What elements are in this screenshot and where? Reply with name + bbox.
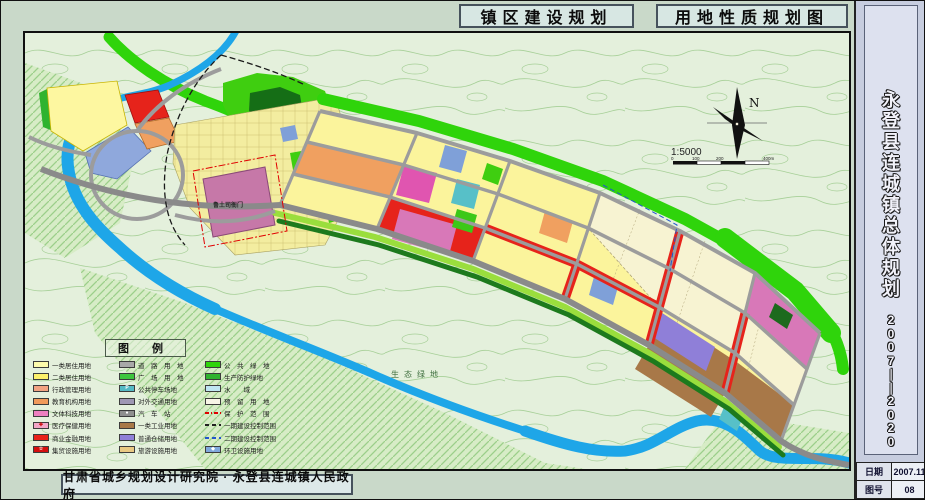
legend-label: 旅游设施用地: [138, 445, 177, 455]
legend-item: 一期建设控制范围: [205, 421, 283, 430]
legend-swatch: ◆: [205, 446, 221, 453]
legend-label: 公共停车场地: [138, 384, 177, 394]
legend-label: 水 域: [224, 384, 250, 394]
vertical-char: 永: [882, 90, 900, 111]
legend-swatch: [33, 398, 49, 405]
info-value: 08: [892, 481, 925, 499]
vertical-char: 规: [882, 258, 900, 279]
legend-swatch: ●: [119, 410, 135, 417]
vertical-char: 0: [888, 436, 895, 450]
label-eco-green: 生态绿地: [391, 369, 443, 379]
legend-swatch: ☆: [33, 446, 49, 453]
legend-swatch: [119, 422, 135, 429]
legend-item: 广 场 用 地: [119, 372, 197, 381]
legend-swatch: [205, 424, 221, 426]
legend-title: 图 例: [105, 339, 186, 357]
vertical-char: 登: [882, 111, 900, 132]
vertical-char: 连: [882, 153, 900, 174]
scale-tick: 200: [716, 156, 724, 161]
credit-text: 甘肃省城乡规划设计研究院 · 永登县连城镇人民政府: [63, 468, 351, 500]
legend-label: 一期建设控制范围: [224, 420, 276, 430]
legend-swatch: [33, 373, 49, 380]
legend-column-2: 公 共 绿 地生产防护绿地水 域预 留 用 地保 护 范 围一期建设控制范围二期…: [205, 360, 283, 454]
legend-column-1: 道 路 用 地广 场 用 地P公共停车场地对外交通用地●汽 车 站一类工业用地普…: [119, 360, 197, 454]
info-value: 2007.11: [892, 463, 925, 481]
legend-item: 文体科技用地: [33, 409, 111, 418]
legend-item: 旅游设施用地: [119, 445, 197, 454]
vertical-char: 镇: [882, 195, 900, 216]
legend-label: 行政管理用地: [52, 384, 91, 394]
legend-item: 一类工业用地: [119, 421, 197, 430]
legend-swatch: [33, 434, 49, 441]
legend-item: 二类居住用地: [33, 372, 111, 381]
legend-swatch: [205, 361, 221, 368]
legend-swatch: P: [119, 385, 135, 392]
legend: 图 例 一类居住用地二类居住用地行政管理用地教育机构用地文体科技用地✚医疗保健用…: [33, 339, 283, 454]
legend-label: 集贸设施用地: [52, 445, 91, 455]
legend-swatch: [205, 385, 221, 392]
compass-n-label: N: [749, 96, 760, 110]
legend-swatch: [119, 434, 135, 441]
legend-item: 行政管理用地: [33, 384, 111, 393]
vertical-char: 0: [888, 341, 895, 355]
vertical-char: 2: [888, 395, 895, 409]
legend-label: 对外交通用地: [138, 396, 177, 406]
legend-label: 一类居住用地: [52, 360, 91, 370]
legend-swatch: [119, 373, 135, 380]
vertical-char: 7: [888, 355, 895, 369]
legend-swatch: [33, 361, 49, 368]
legend-item: 一类居住用地: [33, 360, 111, 369]
legend-label: 医疗保健用地: [52, 420, 91, 430]
legend-label: 普通仓储用地: [138, 433, 177, 443]
legend-item: 生产防护绿地: [205, 372, 283, 381]
legend-swatch: ✚: [33, 422, 49, 429]
scale-tick: 400m: [763, 156, 775, 161]
legend-label: 汽 车 站: [138, 408, 171, 418]
info-label: 图号: [857, 481, 892, 499]
legend-item: ✚医疗保健用地: [33, 421, 111, 430]
legend-item: 普通仓储用地: [119, 433, 197, 442]
legend-item: 二期建设控制范围: [205, 433, 283, 442]
map-panel: N 1:5000 0 100 200 400m 鲁土司衙门 生态绿地 图 例 一…: [23, 31, 851, 471]
vertical-char: —: [884, 382, 898, 394]
legend-swatch: [205, 412, 221, 414]
legend-item: 道 路 用 地: [119, 360, 197, 369]
drawing-info-table: 日期2007.11图号08: [856, 462, 925, 499]
legend-label: 保 护 范 围: [224, 408, 270, 418]
info-row: 图号08: [857, 481, 925, 499]
legend-label: 商业金融用地: [52, 433, 91, 443]
legend-item: 公 共 绿 地: [205, 360, 283, 369]
legend-item: ◆环卫设施用地: [205, 445, 283, 454]
legend-item: ●汽 车 站: [119, 409, 197, 418]
sidebar: 永登县连城镇总体规划 2007——2020 日期2007.11图号08: [854, 1, 925, 500]
legend-label: 生产防护绿地: [224, 372, 263, 382]
legend-label: 广 场 用 地: [138, 372, 184, 382]
legend-item: 水 域: [205, 384, 283, 393]
legend-label: 道 路 用 地: [138, 360, 184, 370]
credit-box: 甘肃省城乡规划设计研究院 · 永登县连城镇人民政府: [61, 474, 353, 495]
title-landuse-map: 用地性质规划图: [656, 4, 848, 28]
info-label: 日期: [857, 463, 892, 481]
info-row: 日期2007.11: [857, 463, 925, 481]
legend-swatch: [205, 373, 221, 380]
legend-item: 对外交通用地: [119, 397, 197, 406]
legend-swatch: [33, 385, 49, 392]
vertical-char: —: [884, 369, 898, 381]
title-construction-plan: 镇区建设规划: [459, 4, 634, 28]
legend-item: 教育机构用地: [33, 397, 111, 406]
vertical-char: 总: [882, 216, 900, 237]
legend-swatch: [119, 446, 135, 453]
legend-item: ☆集贸设施用地: [33, 445, 111, 454]
vertical-char: 体: [882, 237, 900, 258]
legend-swatch: [119, 361, 135, 368]
vertical-char: 城: [882, 174, 900, 195]
title-right-text: 用地性质规划图: [675, 4, 829, 28]
legend-label: 教育机构用地: [52, 396, 91, 406]
vertical-char: 2: [888, 422, 895, 436]
legend-swatch: [33, 410, 49, 417]
legend-label: 一类工业用地: [138, 420, 177, 430]
legend-label: 二类居住用地: [52, 372, 91, 382]
legend-column-0: 一类居住用地二类居住用地行政管理用地教育机构用地文体科技用地✚医疗保健用地商业金…: [33, 360, 111, 454]
vertical-char: 2: [888, 314, 895, 328]
legend-label: 二期建设控制范围: [224, 433, 276, 443]
plan-sheet: 镇区建设规划 用地性质规划图: [0, 0, 925, 500]
legend-item: 保 护 范 围: [205, 409, 283, 418]
legend-swatch: [205, 437, 221, 439]
label-yamen: 鲁土司衙门: [213, 201, 243, 209]
legend-label: 预 留 用 地: [224, 396, 270, 406]
legend-swatch: [119, 398, 135, 405]
legend-item: 商业金融用地: [33, 433, 111, 442]
vertical-char: 0: [888, 409, 895, 423]
legend-item: P公共停车场地: [119, 384, 197, 393]
vertical-char: 划: [882, 279, 900, 300]
sidebar-vertical-years: 2007——2020: [865, 314, 917, 449]
title-left-text: 镇区建设规划: [480, 4, 612, 28]
scale-tick: 100: [692, 156, 700, 161]
vertical-char: 县: [882, 132, 900, 153]
legend-item: 预 留 用 地: [205, 397, 283, 406]
vertical-char: 0: [888, 328, 895, 342]
legend-label: 文体科技用地: [52, 408, 91, 418]
legend-label: 公 共 绿 地: [224, 360, 270, 370]
sidebar-title-panel: 永登县连城镇总体规划 2007——2020: [864, 5, 918, 455]
legend-swatch: [205, 398, 221, 405]
legend-label: 环卫设施用地: [224, 445, 263, 455]
sidebar-vertical-title: 永登县连城镇总体规划: [865, 90, 917, 300]
